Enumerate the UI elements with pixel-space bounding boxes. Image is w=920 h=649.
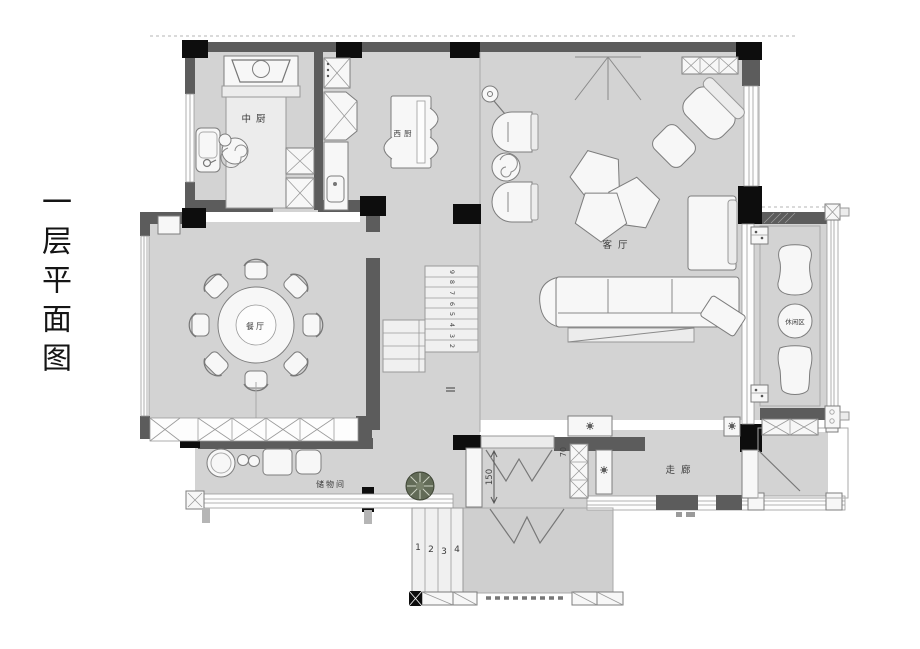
step-number: 3 (441, 547, 447, 557)
flower-icon (728, 422, 736, 430)
sink (196, 128, 220, 172)
column (360, 196, 386, 216)
column (450, 42, 480, 58)
planter-box (596, 450, 612, 494)
corridor-label: 走廊 (665, 464, 696, 476)
media-cabinet (682, 57, 738, 74)
column (182, 40, 208, 58)
leisure-east-window (827, 220, 838, 408)
flower-icon (600, 466, 608, 474)
upper-cabinet (324, 58, 350, 88)
dim-text: 150 (485, 469, 495, 485)
wall-notch (158, 216, 180, 234)
stair-flight-upper (425, 266, 478, 352)
potted-plant (406, 472, 434, 500)
armchair (492, 182, 538, 222)
counter-sink (324, 142, 348, 210)
floor-plan-page: 一层平面图 (0, 0, 920, 649)
door-jamb (466, 448, 482, 507)
floor-plan-drawing: 中厨 (0, 0, 920, 649)
column-marker (751, 385, 768, 402)
armchair (492, 112, 538, 152)
exterior-steps: 1 2 3 4 (412, 508, 463, 593)
kitchen-window (186, 94, 194, 182)
porch-floor (463, 508, 613, 593)
stair-number: 7 (448, 291, 456, 295)
planter-box (568, 416, 612, 436)
hood-duct (253, 61, 270, 78)
dining-bay-window (141, 236, 149, 416)
bench (263, 449, 292, 475)
column (738, 186, 762, 224)
kitchen-cn-label: 中厨 (241, 113, 270, 125)
column (336, 42, 362, 58)
dining-sideboard (150, 418, 358, 441)
corridor-cabinet (762, 419, 818, 435)
step-number: 2 (428, 545, 434, 555)
planter-box (724, 417, 740, 436)
step-number: 1 (415, 543, 421, 553)
dining-label: 餐厅 (246, 322, 266, 331)
sofa-rug (568, 328, 694, 342)
storage-label: 储物间 (316, 479, 346, 489)
cooktop-counter (222, 86, 300, 97)
living-east-window (744, 86, 758, 186)
lounge-chair (778, 346, 812, 395)
stool (238, 455, 249, 466)
wall-stub (202, 508, 210, 523)
stool (249, 456, 260, 467)
door-header (481, 436, 554, 448)
stair-number: 6 (448, 302, 456, 306)
lounge-chair (778, 245, 812, 295)
corridor-floor-east (760, 432, 828, 498)
tiny-annotation-marks (676, 512, 695, 517)
shoe-cabinet (570, 444, 588, 498)
kitchen-west-label: 西厨 (394, 129, 415, 138)
corner-marker (825, 204, 849, 220)
living-label: 客厅 (602, 239, 633, 251)
stair-number: 9 (448, 270, 456, 274)
column (453, 204, 481, 224)
window-marker (186, 491, 204, 509)
column (736, 42, 762, 60)
tall-cabinet (286, 148, 314, 208)
stair-number: 8 (448, 280, 456, 284)
dim-text: 70 (559, 447, 568, 457)
bench (296, 450, 321, 474)
stair-number: 3 (448, 334, 456, 338)
wall-stub (364, 510, 372, 524)
leisure-label: 休闲区 (785, 317, 805, 326)
stair-flight-lower (383, 320, 425, 372)
corner-marker (825, 406, 849, 428)
side-table (492, 153, 520, 181)
stair-number: 4 (448, 323, 456, 327)
door-leaf-panel (742, 450, 758, 498)
stair-number: 2 (448, 344, 456, 348)
column (182, 208, 206, 228)
column-marker (751, 227, 768, 244)
stair-number: 5 (448, 312, 456, 316)
flower-icon (586, 422, 594, 430)
fridge (324, 92, 357, 140)
table-runner (417, 101, 425, 163)
step-number: 4 (454, 545, 460, 555)
